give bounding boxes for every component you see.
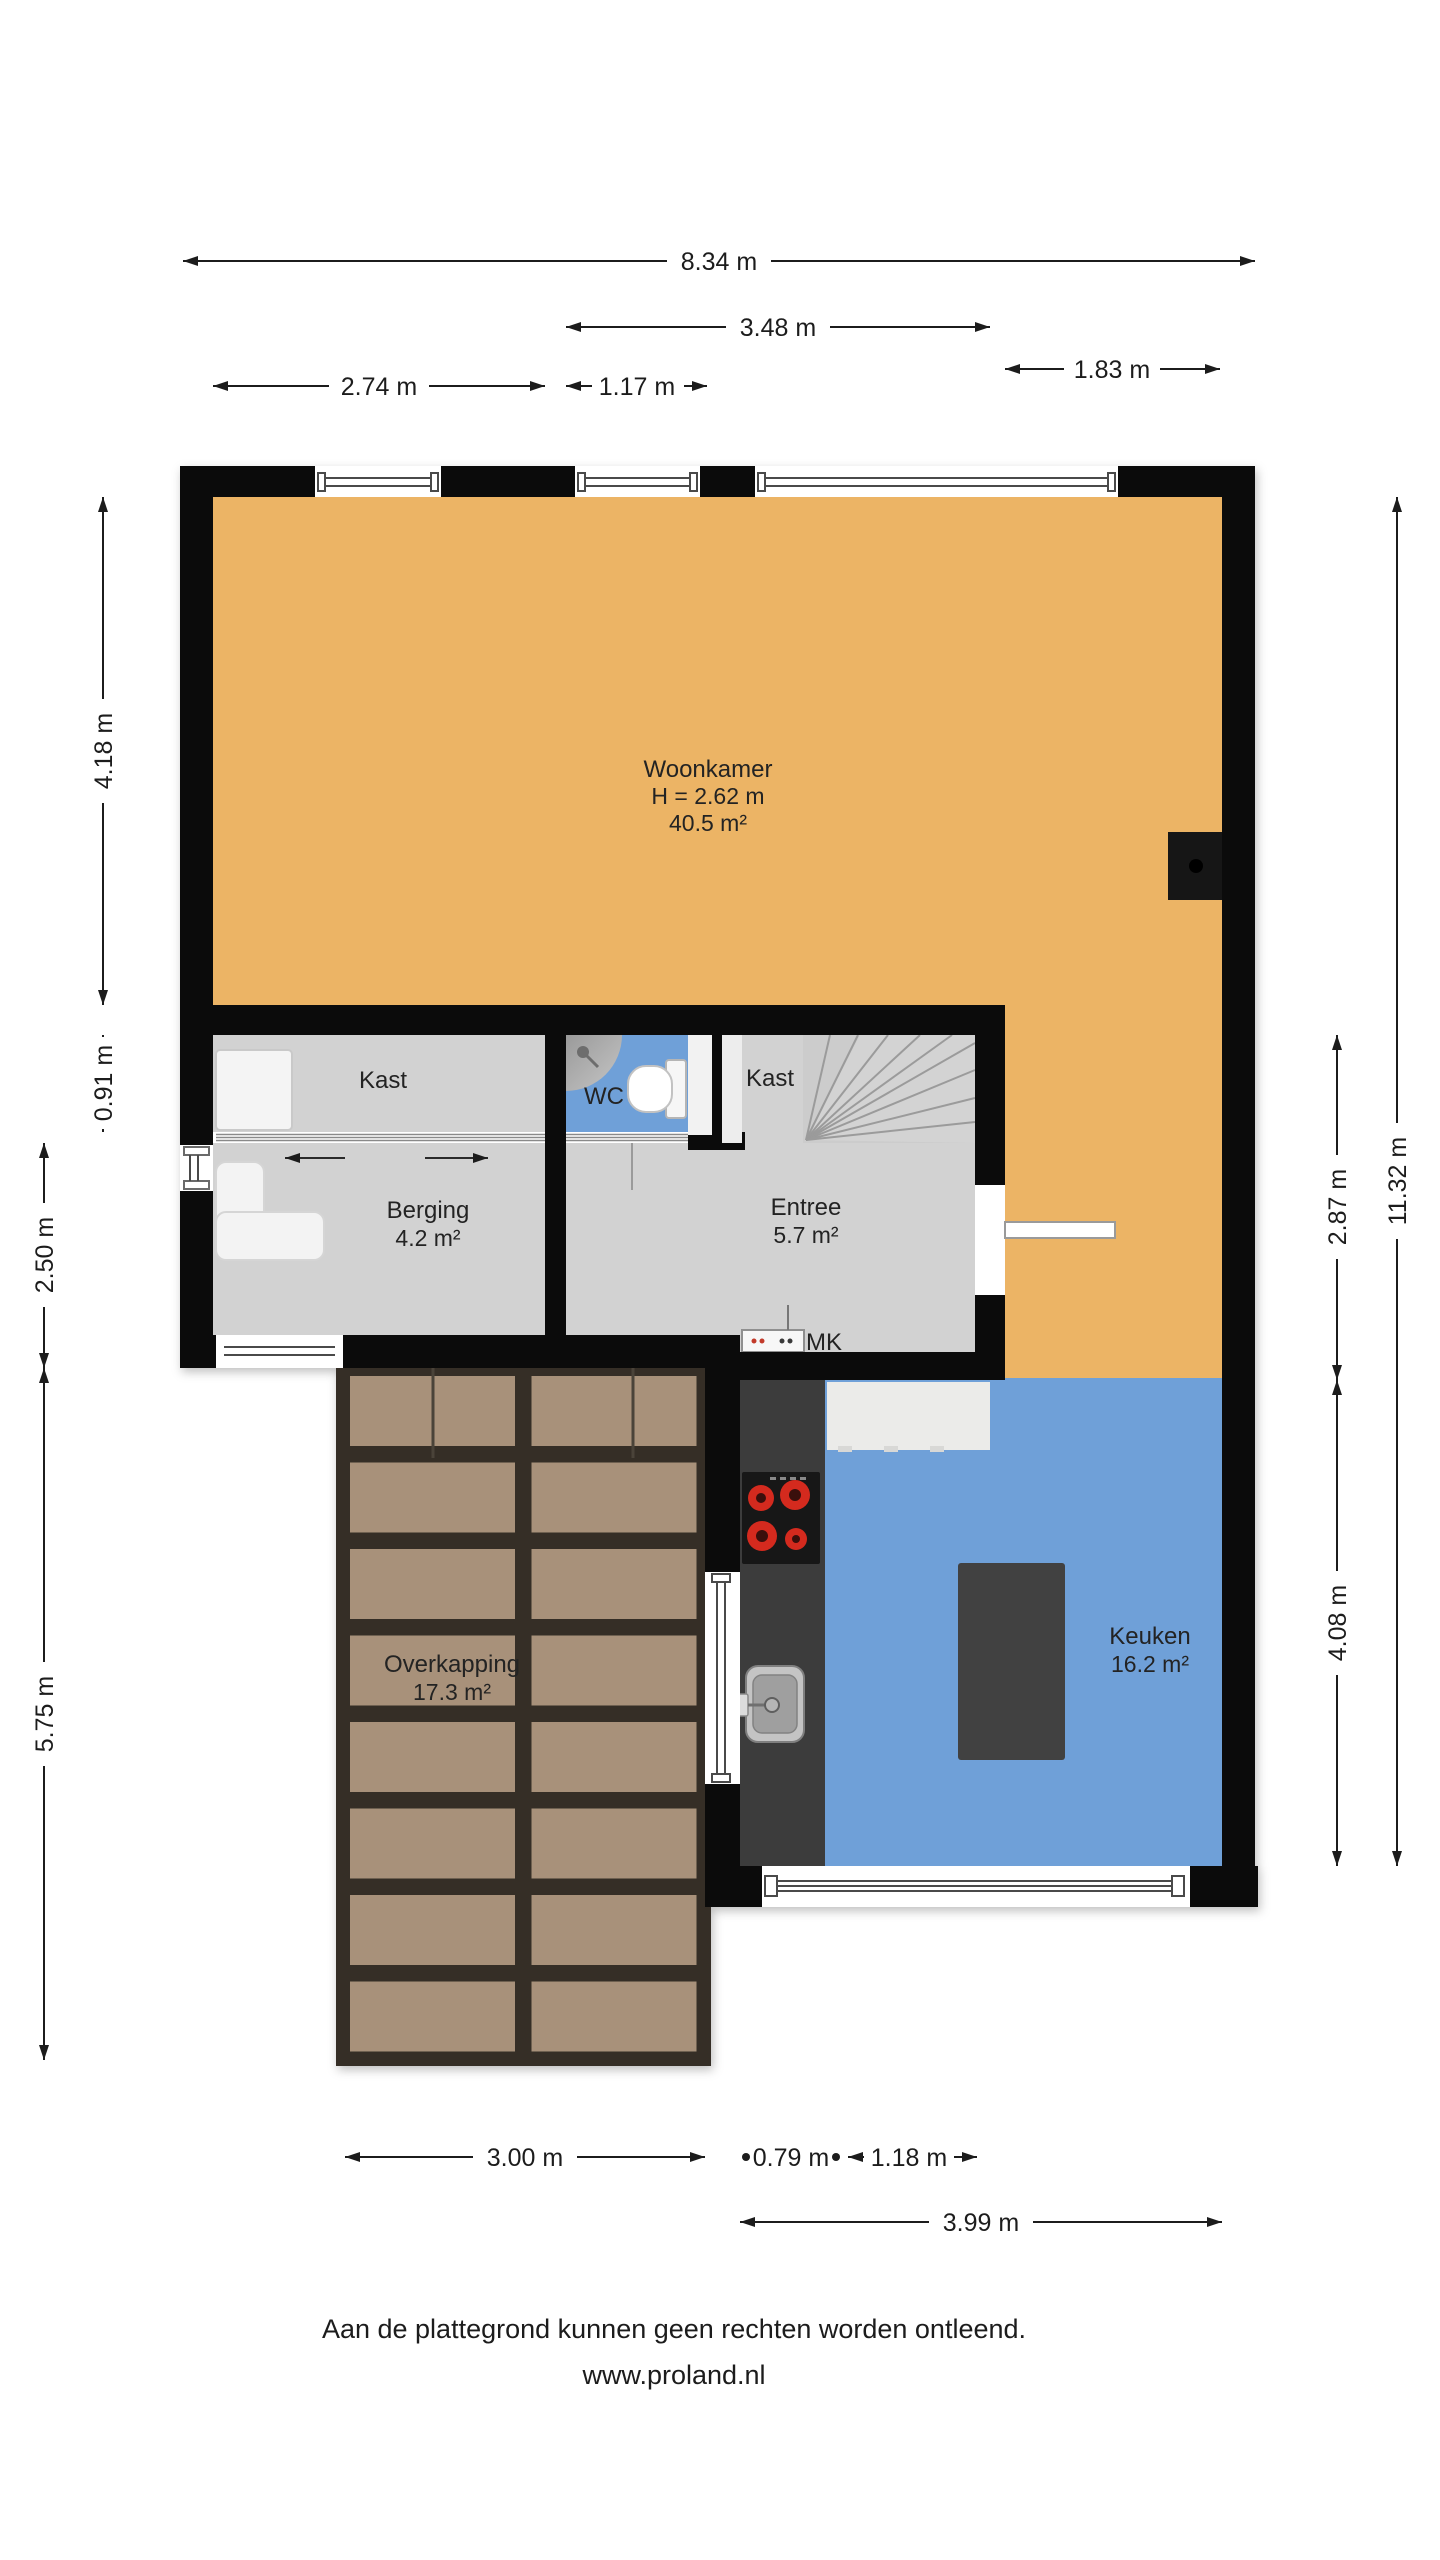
room-label-keuken-area: 16.2 m² bbox=[1111, 1651, 1189, 1677]
room-label-woonkamer-area: 40.5 m² bbox=[669, 810, 747, 836]
dim-right-total: 11.32 m bbox=[1384, 1137, 1412, 1225]
stove-icon bbox=[742, 1472, 820, 1564]
window bbox=[315, 466, 441, 497]
dim-top-entree-block: 3.48 m bbox=[740, 314, 816, 342]
floor-plan: Woonkamer H = 2.62 m 40.5 m² Kast WC Kas… bbox=[0, 0, 1440, 2560]
room-label-kast-links: Kast bbox=[359, 1067, 407, 1094]
window bbox=[755, 466, 1118, 497]
room-label-woonkamer: Woonkamer bbox=[644, 756, 773, 783]
dim-left-kast: 0.91 m bbox=[90, 1045, 118, 1121]
dim-bottom-overkapping: 3.00 m bbox=[487, 2144, 563, 2172]
dim-top-wc-section: 1.17 m bbox=[599, 373, 675, 401]
sink-icon bbox=[736, 1666, 804, 1742]
dim-bottom-worktop: 1.18 m bbox=[871, 2144, 947, 2172]
dim-top-right-section: 1.83 m bbox=[1074, 356, 1150, 384]
window bbox=[216, 1335, 343, 1368]
kitchen-worktop bbox=[827, 1382, 990, 1452]
footer-website: www.proland.nl bbox=[581, 2360, 765, 2390]
dim-left-overkapping: 5.75 m bbox=[31, 1676, 59, 1752]
footer-disclaimer: Aan de plattegrond kunnen geen rechten w… bbox=[322, 2314, 1026, 2344]
window bbox=[762, 1866, 1190, 1907]
dim-left-woonkamer: 4.18 m bbox=[90, 713, 118, 789]
window bbox=[575, 466, 700, 497]
stairs-icon bbox=[803, 1035, 975, 1143]
dim-right-keuken: 4.08 m bbox=[1324, 1585, 1352, 1661]
dim-bottom-counter: 0.79 m bbox=[753, 2144, 829, 2172]
dim-top-left-section: 2.74 m bbox=[341, 373, 417, 401]
chimney-flue-icon bbox=[1189, 859, 1203, 873]
window bbox=[705, 1572, 740, 1784]
room-label-entree: Entree bbox=[771, 1194, 842, 1221]
room-label-berging-area: 4.2 m² bbox=[395, 1225, 461, 1251]
room-label-wc: WC bbox=[584, 1083, 624, 1110]
closet-cabinet bbox=[216, 1050, 292, 1130]
room-label-overkapping-area: 17.3 m² bbox=[413, 1679, 491, 1705]
kitchen-counter bbox=[740, 1380, 825, 1866]
dim-left-berging: 2.50 m bbox=[31, 1217, 59, 1293]
kitchen-island bbox=[958, 1563, 1065, 1760]
dim-bottom-keuken: 3.99 m bbox=[943, 2209, 1019, 2237]
room-label-kast-entree: Kast bbox=[746, 1065, 794, 1092]
dim-right-middle: 2.87 m bbox=[1324, 1169, 1352, 1245]
room-label-mk: MK bbox=[806, 1329, 842, 1356]
room-label-overkapping: Overkapping bbox=[384, 1651, 520, 1678]
room-label-keuken: Keuken bbox=[1109, 1623, 1190, 1650]
room-overkapping-floor bbox=[342, 1368, 705, 2060]
door bbox=[688, 1035, 712, 1135]
dim-top-total: 8.34 m bbox=[681, 248, 757, 276]
room-label-berging: Berging bbox=[387, 1197, 470, 1224]
room-label-woonkamer-height: H = 2.62 m bbox=[651, 783, 764, 809]
door bbox=[180, 1145, 213, 1191]
door bbox=[722, 1035, 742, 1143]
floor-plan-page: Woonkamer H = 2.62 m 40.5 m² Kast WC Kas… bbox=[0, 0, 1440, 2560]
toilet-icon bbox=[628, 1060, 686, 1118]
room-label-entree-area: 5.7 m² bbox=[773, 1222, 839, 1248]
